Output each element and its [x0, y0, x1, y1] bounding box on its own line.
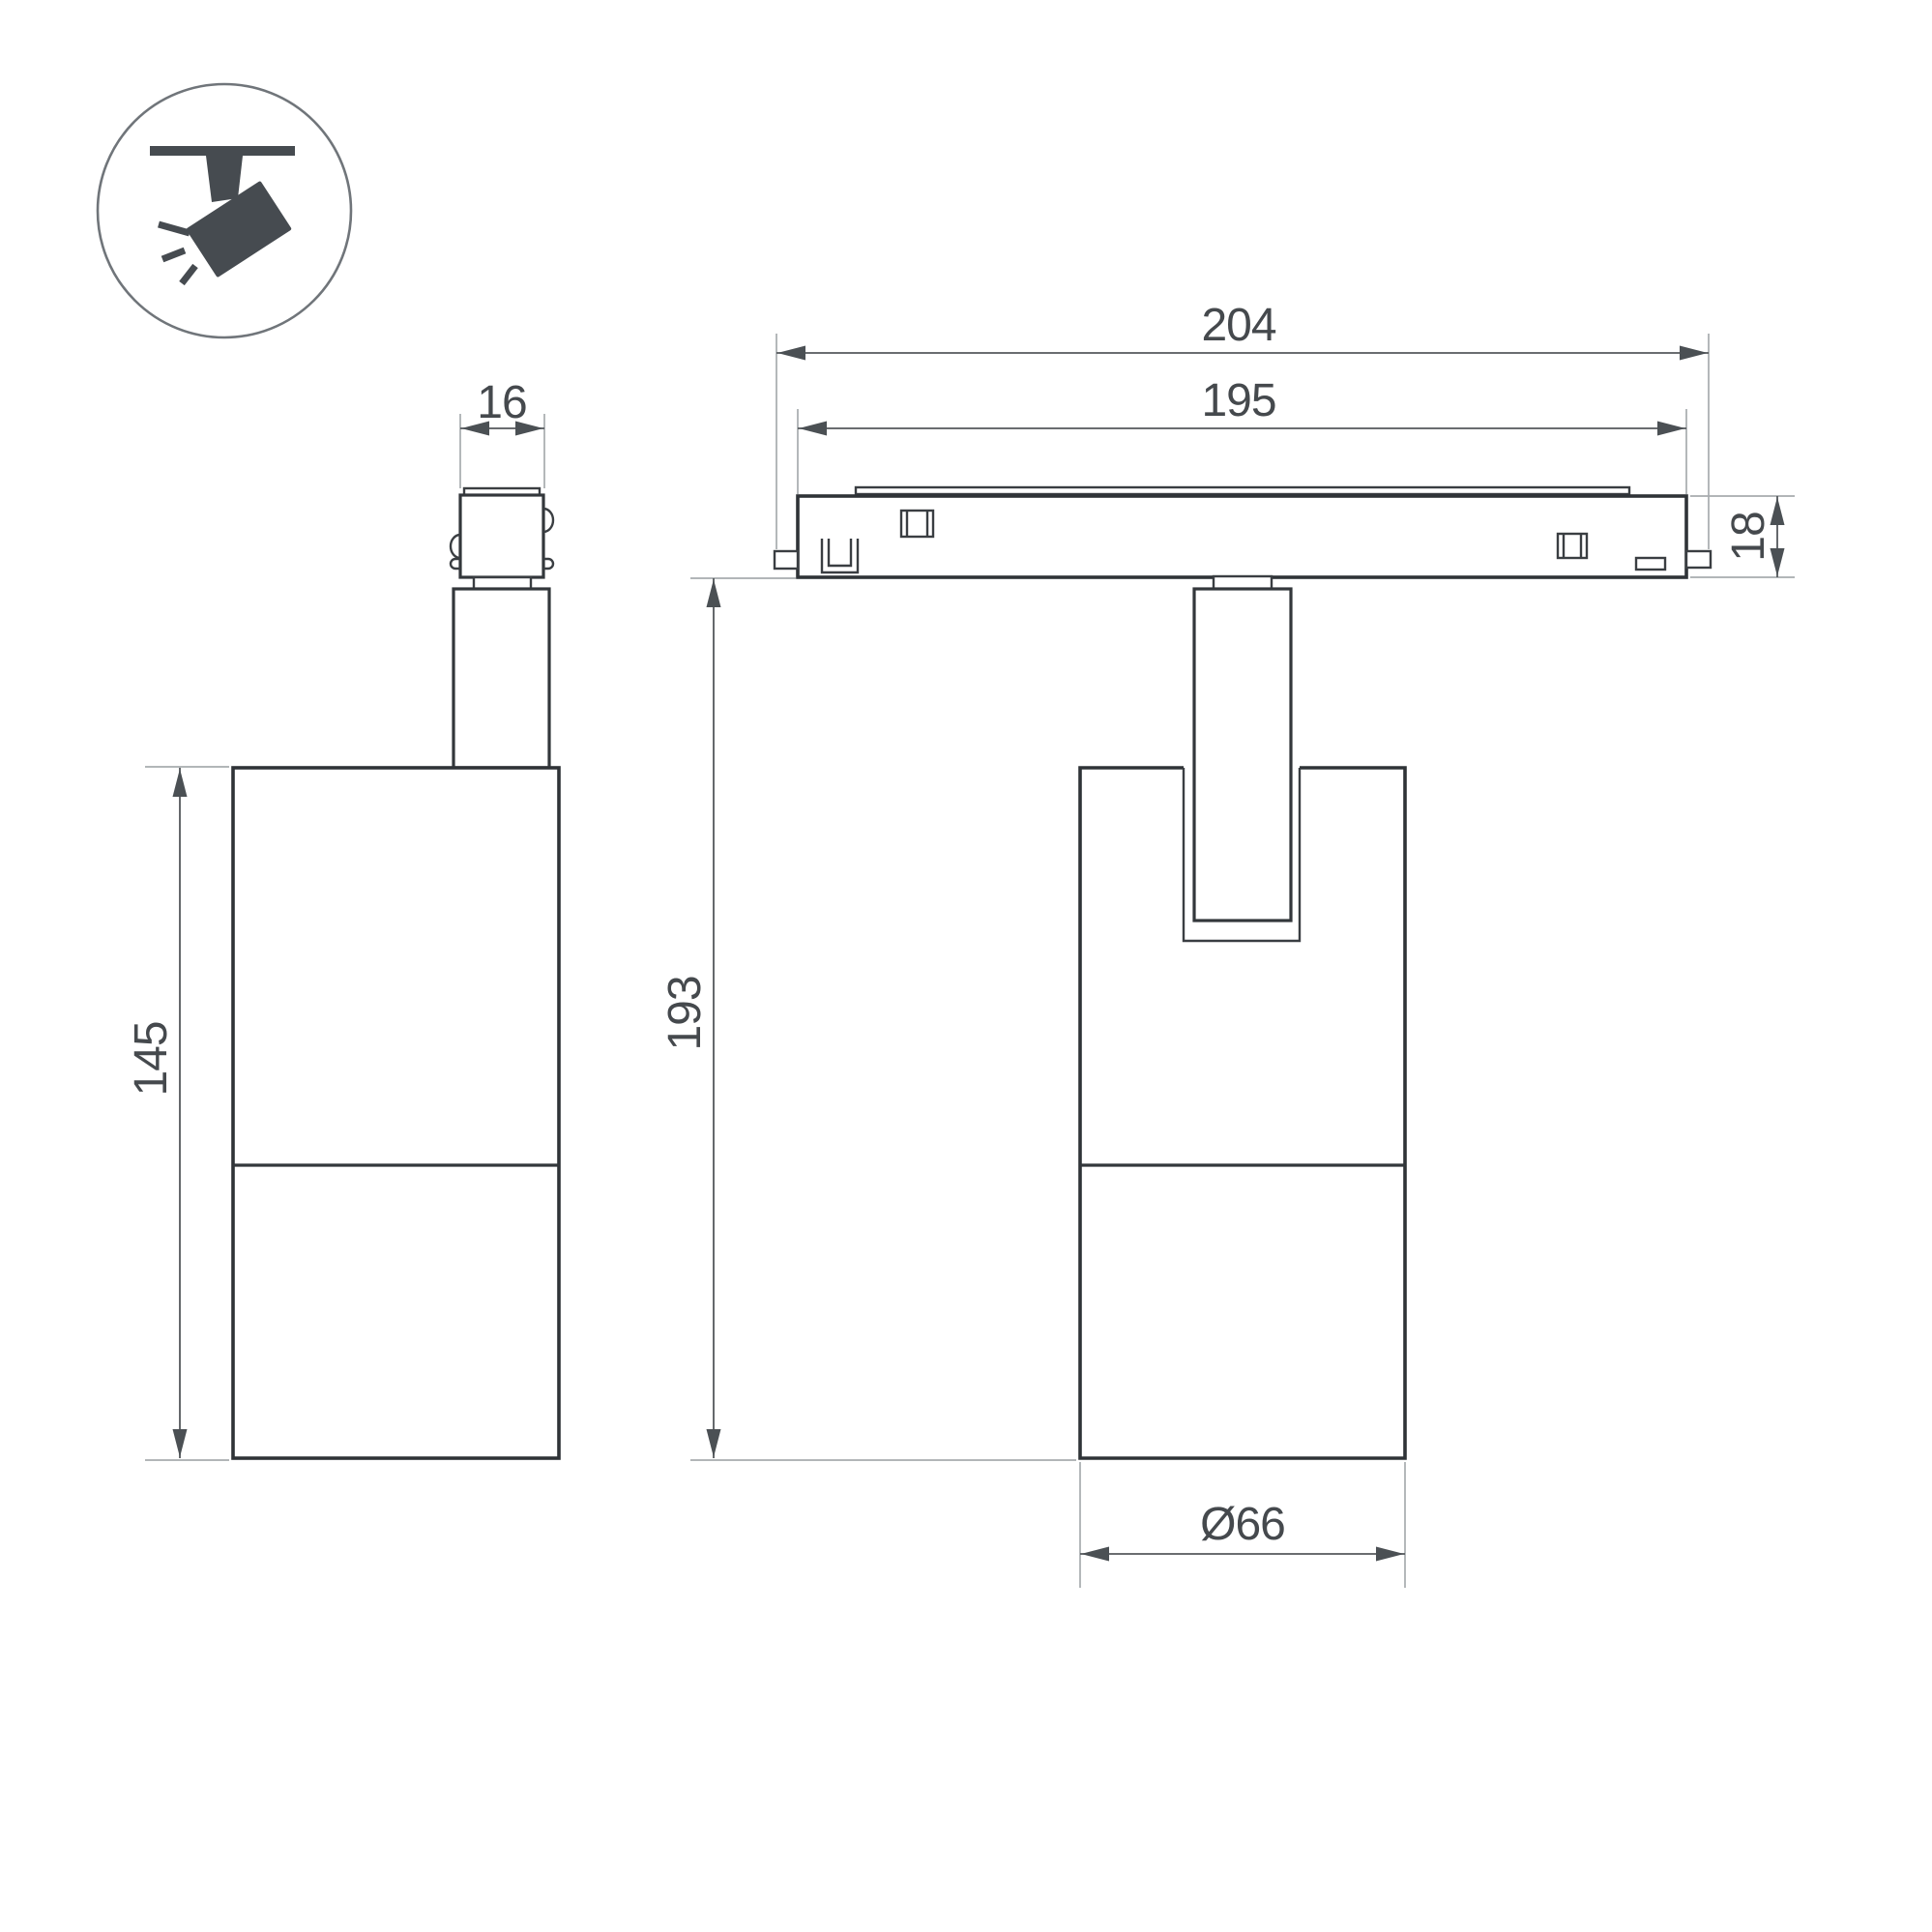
- side-lamp-body: [233, 768, 559, 1458]
- dimension-label-204: 204: [1201, 300, 1275, 351]
- dimension-label-18: 18: [1723, 512, 1774, 561]
- dimension-body-diameter: Ø66: [1080, 1462, 1405, 1588]
- side-neck: [474, 577, 531, 589]
- dimension-adapter-width: 16: [460, 377, 544, 488]
- icon-ceiling-bar: [150, 146, 295, 156]
- dimension-body-height: 145: [126, 767, 229, 1460]
- dimension-label-145: 145: [126, 1021, 177, 1096]
- side-view: [233, 488, 559, 1458]
- track-left-latch: [775, 551, 798, 569]
- dimension-track-body-length: 195: [798, 375, 1686, 494]
- front-view: [775, 487, 1711, 1458]
- dimension-hanging-height: 193: [659, 578, 1076, 1460]
- dimension-label-16: 16: [477, 377, 526, 428]
- dimension-label-66: Ø66: [1200, 1499, 1285, 1550]
- side-stem: [454, 589, 549, 768]
- dimension-drawing: 16 145: [0, 0, 1932, 1932]
- track-spotlight-icon: [98, 84, 351, 337]
- track-top-strip: [856, 487, 1629, 494]
- front-neck: [1214, 576, 1272, 589]
- front-stem: [1194, 589, 1291, 921]
- dimension-label-193: 193: [659, 976, 711, 1050]
- side-track-adapter: [460, 495, 543, 577]
- track-right-latch: [1686, 551, 1711, 568]
- drawing-page: 16 145: [0, 0, 1932, 1932]
- dimension-label-195: 195: [1201, 375, 1275, 426]
- icon-mount-stem: [206, 156, 243, 202]
